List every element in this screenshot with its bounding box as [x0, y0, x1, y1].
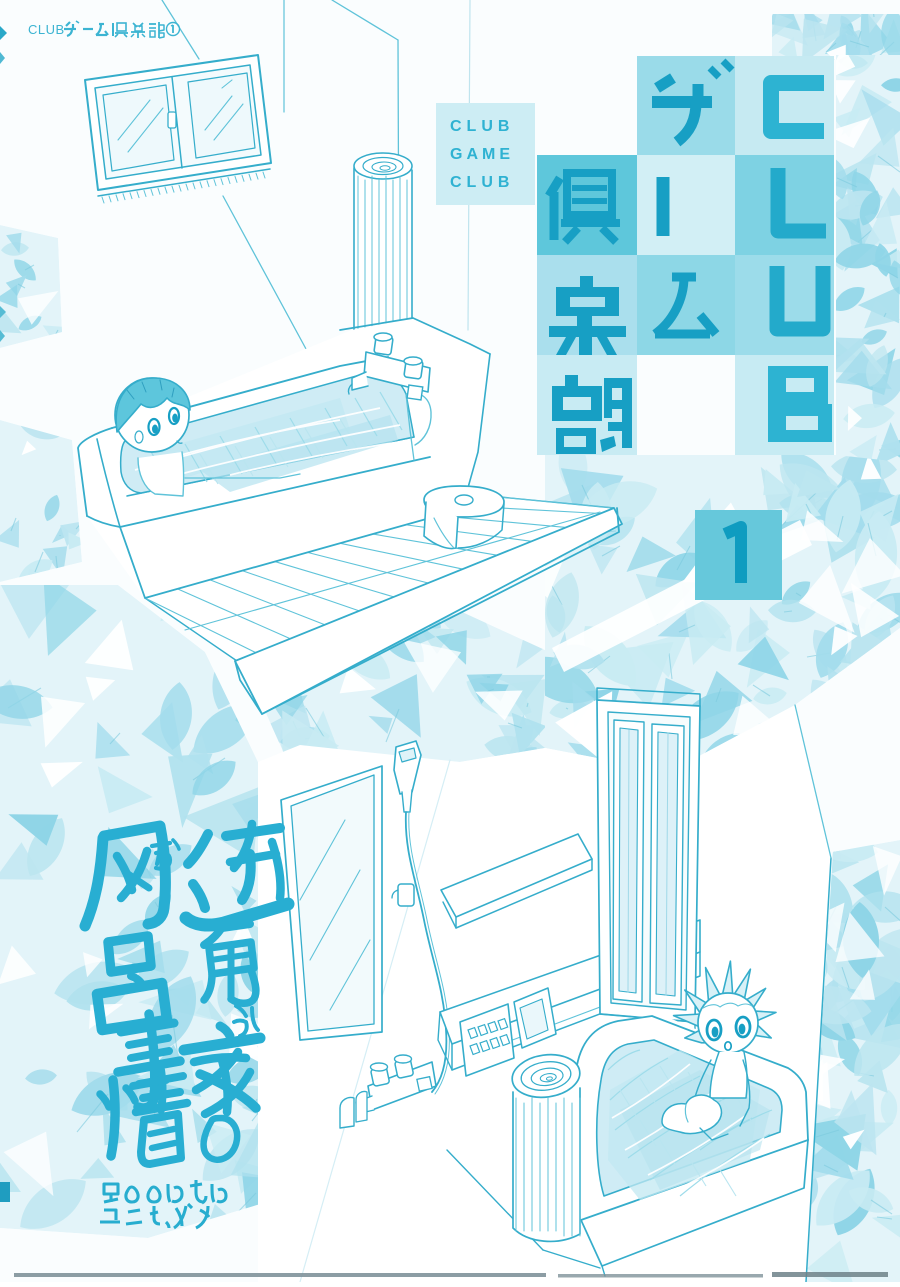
svg-text:GAME: GAME: [450, 146, 514, 163]
svg-text:CLUB: CLUB: [450, 118, 514, 135]
svg-text:CLUB: CLUB: [28, 22, 65, 37]
svg-text:CLUB: CLUB: [450, 174, 514, 191]
